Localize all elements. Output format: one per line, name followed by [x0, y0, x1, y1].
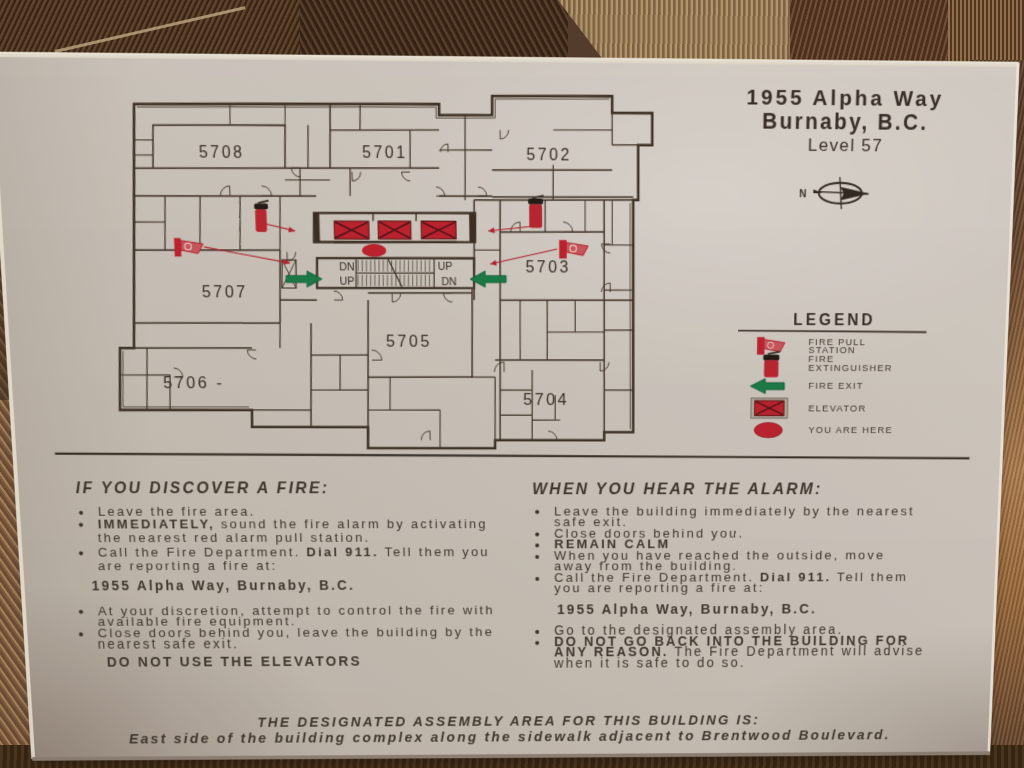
svg-text:IF YOU DISCOVER A FIRE:: IF YOU DISCOVER A FIRE:	[75, 479, 330, 498]
svg-text:ELEVATOR: ELEVATOR	[808, 404, 866, 414]
svg-text:5704: 5704	[523, 390, 569, 409]
svg-text:5707: 5707	[202, 282, 249, 301]
svg-text:DN: DN	[339, 261, 355, 273]
svg-text:5705: 5705	[386, 332, 432, 351]
svg-text:DN: DN	[441, 276, 456, 288]
svg-text:5706 -: 5706 -	[163, 373, 225, 392]
svg-text:the nearest red alarm pull sta: the nearest red alarm pull station.	[97, 530, 370, 545]
svg-text:5702: 5702	[526, 145, 571, 164]
svg-text:IMMEDIATELY, sound the fire al: IMMEDIATELY, sound the fire alarm by act…	[97, 516, 488, 531]
svg-text:UP: UP	[339, 276, 354, 288]
svg-text:WHEN YOU HEAR THE ALARM:: WHEN YOU HEAR THE ALARM:	[532, 479, 823, 497]
svg-text:East side of the building comp: East side of the building complex along …	[129, 728, 891, 747]
svg-text:1955 Alpha Way, Burnaby, B.C.: 1955 Alpha Way, Burnaby, B.C.	[557, 602, 817, 618]
svg-text:you are reporting a fire at:: you are reporting a fire at:	[554, 581, 765, 596]
svg-text:LEGEND: LEGEND	[793, 311, 876, 329]
svg-text:1955 Alpha Way: 1955 Alpha Way	[746, 84, 944, 111]
svg-text:Level 57: Level 57	[808, 134, 884, 155]
svg-text:DO NOT USE THE ELEVATORS: DO NOT USE THE ELEVATORS	[106, 654, 362, 670]
svg-text:nearest safe exit.: nearest safe exit.	[97, 638, 239, 653]
svg-text:YOU ARE HERE: YOU ARE HERE	[808, 426, 893, 436]
svg-text:EXTINGUISHER: EXTINGUISHER	[808, 363, 893, 374]
svg-text:are reporting a fire at:: are reporting a fire at:	[97, 559, 277, 574]
svg-text:5703: 5703	[525, 257, 571, 276]
svg-text:FIRE EXIT: FIRE EXIT	[808, 382, 864, 392]
svg-text:when it is safe to do so.: when it is safe to do so.	[553, 656, 746, 671]
svg-text:5701: 5701	[362, 143, 408, 162]
svg-text:N: N	[799, 188, 807, 200]
svg-text:1955 Alpha Way, Burnaby, B.C.: 1955 Alpha Way, Burnaby, B.C.	[91, 579, 355, 594]
svg-text:Burnaby, B.C.: Burnaby, B.C.	[762, 109, 929, 135]
svg-text:5708: 5708	[199, 143, 245, 162]
svg-text:UP: UP	[438, 261, 453, 273]
svg-text:Call the Fire Department. Dia: Call the Fire Department. Dial 911. Tell…	[97, 545, 489, 560]
